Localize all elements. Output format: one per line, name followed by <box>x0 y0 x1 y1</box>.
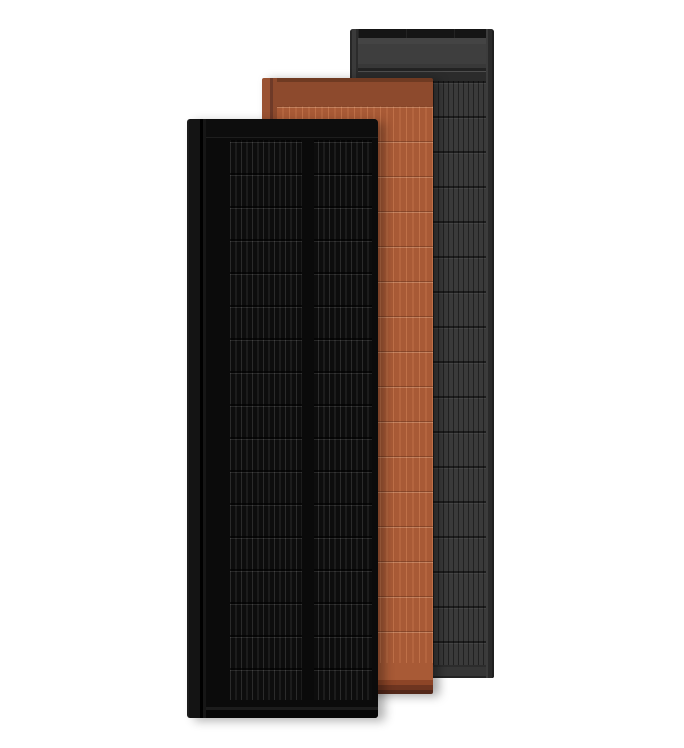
black-panel-mounting-flange <box>187 119 206 718</box>
black-panel-bottom-frame <box>206 700 378 718</box>
matte-black-solar-panel <box>187 119 378 718</box>
gray-panel-right-frame <box>486 29 494 678</box>
black-panel-top-frame <box>206 119 378 140</box>
gray-panel-top-rail <box>358 29 486 38</box>
black-panel-body <box>206 119 378 718</box>
black-panel-cell-grid <box>230 140 372 700</box>
terracotta-panel-header-band <box>277 78 433 106</box>
product-render-stage <box>0 0 684 748</box>
gray-panel-header-band <box>358 38 486 68</box>
